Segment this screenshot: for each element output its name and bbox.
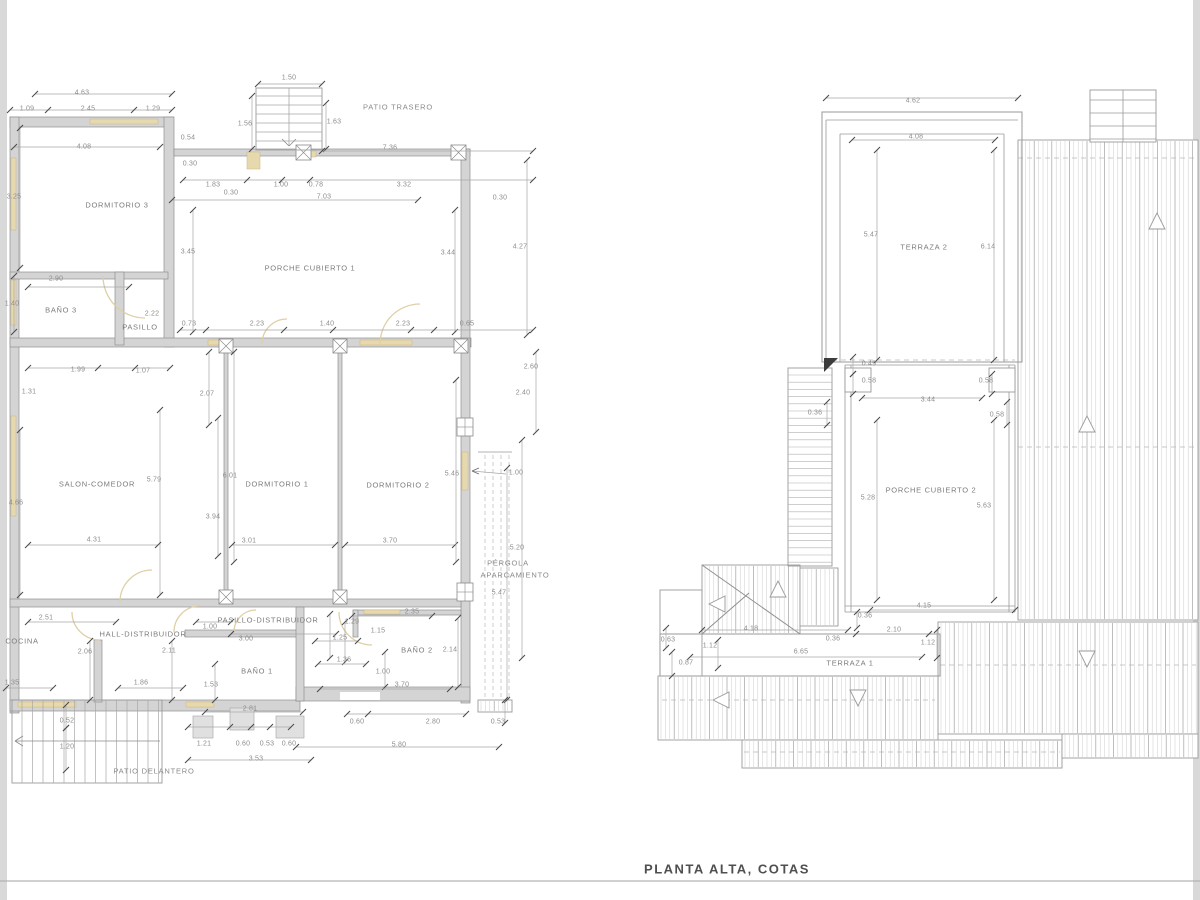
left-plan-dim-label: 3.53: [249, 756, 263, 763]
left-plan-room-label: DORMITORIO 3: [85, 201, 148, 210]
left-plan-room-label: PASILLO: [122, 323, 158, 332]
right-plan-dim-label: 0.58: [990, 412, 1004, 419]
left-plan-dim-label: 2.81: [243, 706, 257, 713]
left-plan-room-label: PASILLO-DISTRIBUIDOR: [218, 616, 319, 625]
left-plan-dim-label: 1.99: [71, 367, 85, 374]
left-plan-dim-label: 1.56: [238, 121, 252, 128]
right-plan-dim-label: 6.14: [981, 244, 995, 251]
left-plan-dim-label: 2.35: [405, 609, 419, 616]
left-plan-dim-label: 0.54: [181, 135, 195, 142]
left-plan-room-label: DORMITORIO 2: [366, 481, 429, 490]
left-plan-dim-label: 1.40: [5, 301, 19, 308]
right-plan-room-label: TERRAZA 2: [900, 243, 947, 252]
left-plan-dim-label: 1.00: [203, 624, 217, 631]
left-plan-dim-label: 1.29: [345, 619, 359, 626]
sheet-title: PLANTA ALTA, COTAS: [644, 862, 810, 877]
left-plan-dim-label: 3.01: [242, 538, 256, 545]
left-plan-dim-label: 0.60: [236, 741, 250, 748]
left-plan-room-label: BAÑO 2: [401, 646, 433, 655]
left-plan-dim-label: 1.63: [327, 119, 341, 126]
left-plan-dim-label: 1.00: [509, 470, 523, 477]
right-plan-dim-label: 0.58: [979, 378, 993, 385]
left-plan-dim-label: 1.20: [60, 744, 74, 751]
right-plan-room-label: TERRAZA 1: [826, 659, 873, 668]
left-plan-dim-label: 0.53: [260, 741, 274, 748]
labels-layer: 4.631.092.451.294.083.251.501.561.63PATI…: [0, 0, 1200, 900]
right-plan-dim-label: 5.63: [977, 503, 991, 510]
left-plan-dim-label: 4.66: [9, 500, 23, 507]
right-plan-dim-label: 0.36: [826, 636, 840, 643]
left-plan-dim-label: 3.00: [239, 636, 253, 643]
left-plan-dim-label: 2.45: [81, 106, 95, 113]
left-plan-dim-label: 5.46: [445, 471, 459, 478]
left-plan-area-label: PÉRGOLA: [487, 559, 529, 568]
left-plan-dim-label: 5.47: [492, 590, 506, 597]
right-plan-dim-label: 1.12: [921, 640, 935, 647]
left-plan-dim-label: 2.23: [250, 321, 264, 328]
left-plan-dim-label: 2.60: [524, 364, 538, 371]
left-plan-dim-label: 1.53: [204, 682, 218, 689]
left-plan-dim-label: 3.25: [7, 194, 21, 201]
left-plan-dim-label: 7.36: [383, 145, 397, 152]
left-plan-room-label: HALL-DISTRIBUIDOR: [100, 630, 187, 639]
left-plan-dim-label: 1.50: [282, 75, 296, 82]
left-plan-dim-label: 3.32: [397, 182, 411, 189]
left-plan-dim-label: 3.70: [383, 538, 397, 545]
left-plan-dim-label: 1.31: [22, 389, 36, 396]
left-plan-area-label: APARCAMIENTO: [481, 571, 550, 580]
left-plan-dim-label: 4.08: [77, 144, 91, 151]
left-plan-dim-label: 4.31: [87, 537, 101, 544]
right-plan-dim-label: 4.18: [744, 626, 758, 633]
left-plan-dim-label: 0.73: [182, 321, 196, 328]
left-plan-dim-label: 0.53: [491, 719, 505, 726]
left-plan-dim-label: 2.23: [396, 321, 410, 328]
right-plan-dim-label: 2.10: [887, 627, 901, 634]
left-plan-area-label: PATIO TRASERO: [363, 103, 433, 112]
left-plan-dim-label: 1.09: [20, 106, 34, 113]
left-plan-dim-label: 5.80: [392, 742, 406, 749]
left-plan-dim-label: 1.07: [136, 368, 150, 375]
left-plan-dim-label: 0.78: [309, 182, 323, 189]
left-plan-dim-label: 7.03: [317, 194, 331, 201]
left-plan-room-label: SALON-COMEDOR: [59, 480, 135, 489]
left-plan-room-label: COCINA: [5, 637, 38, 646]
left-plan-dim-label: 1.21: [197, 741, 211, 748]
right-plan-dim-label: 4.08: [909, 134, 923, 141]
left-plan-dim-label: 1.00: [274, 182, 288, 189]
left-plan-dim-label: 1.29: [146, 106, 160, 113]
left-plan-dim-label: 0.65: [460, 321, 474, 328]
right-plan-dim-label: 3.44: [921, 397, 935, 404]
left-plan-dim-label: 1.36: [337, 657, 351, 664]
right-plan-dim-label: 0.49: [862, 361, 876, 368]
right-plan-dim-label: 1.12: [703, 643, 717, 650]
right-plan-dim-label: 0.36: [858, 613, 872, 620]
left-plan-dim-label: 2.51: [39, 615, 53, 622]
left-plan-room-label: PORCHE CUBIERTO 1: [265, 264, 356, 273]
right-plan-dim-label: 6.65: [794, 649, 808, 656]
left-plan-dim-label: 0.30: [183, 161, 197, 168]
left-plan-dim-label: 0.52: [60, 718, 74, 725]
right-plan-dim-label: 5.47: [864, 232, 878, 239]
left-plan-dim-label: 2.06: [78, 649, 92, 656]
left-plan-dim-label: 4.63: [75, 90, 89, 97]
left-plan-dim-label: 1.83: [206, 182, 220, 189]
left-plan-room-label: BAÑO 1: [241, 667, 273, 676]
left-plan-dim-label: 1.35: [5, 680, 19, 687]
left-plan-dim-label: 0.60: [282, 741, 296, 748]
left-plan-dim-label: 0.30: [224, 190, 238, 197]
right-plan-dim-label: 0.87: [679, 660, 693, 667]
right-plan-dim-label: 4.62: [906, 98, 920, 105]
left-plan-dim-label: 0.60: [350, 719, 364, 726]
right-plan-room-label: PORCHE CUBIERTO 2: [886, 486, 977, 495]
left-plan-dim-label: 4.27: [513, 244, 527, 251]
left-plan-dim-label: 1.00: [376, 669, 390, 676]
left-plan-dim-label: 3.44: [441, 250, 455, 257]
right-plan-dim-label: 0.58: [862, 378, 876, 385]
right-plan-dim-label: 0.36: [808, 410, 822, 417]
left-plan-dim-label: 1.40: [320, 321, 334, 328]
left-plan-dim-label: 1.86: [134, 680, 148, 687]
right-plan-dim-label: 5.28: [861, 495, 875, 502]
left-plan-room-label: DORMITORIO 1: [245, 480, 308, 489]
left-plan-dim-label: 2.14: [443, 647, 457, 654]
left-plan-dim-label: 3.70: [395, 682, 409, 689]
left-plan-dim-label: 5.20: [510, 545, 524, 552]
left-plan-area-label: PATIO DELANTERO: [113, 767, 194, 776]
left-plan-dim-label: 3.94: [206, 514, 220, 521]
left-plan-dim-label: 2.40: [516, 390, 530, 397]
left-plan-dim-label: 6.01: [223, 473, 237, 480]
left-plan-dim-label: 0.30: [493, 195, 507, 202]
left-plan-dim-label: 3.45: [181, 249, 195, 256]
left-plan-dim-label: 2.80: [426, 719, 440, 726]
floor-plan-sheet: 4.631.092.451.294.083.251.501.561.63PATI…: [0, 0, 1200, 900]
left-plan-dim-label: 2.90: [49, 276, 63, 283]
right-plan-dim-label: 4.15: [917, 603, 931, 610]
right-plan-dim-label: 0.63: [661, 637, 675, 644]
left-plan-dim-label: 5.79: [147, 477, 161, 484]
left-plan-dim-label: 1.25: [333, 635, 347, 642]
left-plan-dim-label: 2.11: [162, 648, 176, 655]
left-plan-dim-label: 2.22: [145, 311, 159, 318]
left-plan-dim-label: 1.15: [371, 628, 385, 635]
left-plan-room-label: BAÑO 3: [45, 306, 77, 315]
left-plan-dim-label: 2.07: [200, 391, 214, 398]
